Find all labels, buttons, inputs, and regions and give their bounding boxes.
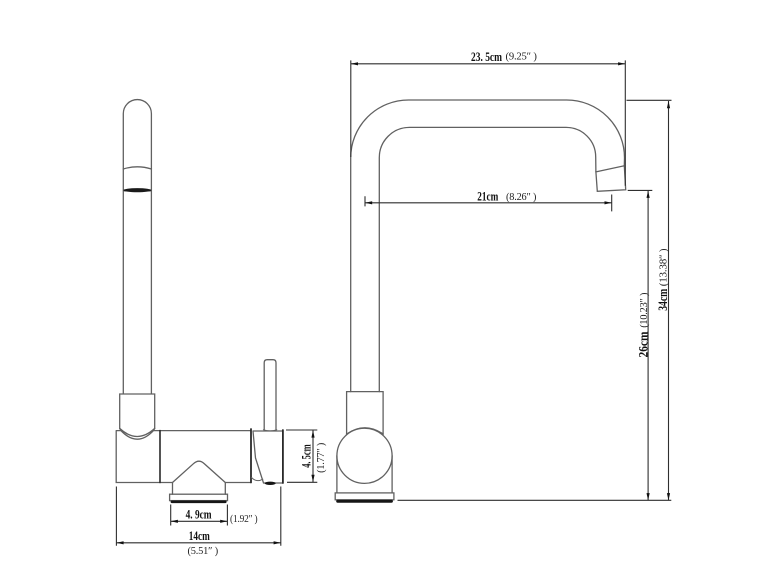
svg-text:(1.92″ ): (1.92″ ) [230,513,258,525]
svg-text:(5.51″ ): (5.51″ ) [188,545,219,557]
svg-text:14cm: 14cm [189,529,210,543]
svg-text:26cm: 26cm [636,331,650,358]
svg-text:23. 5cm: 23. 5cm [471,50,502,64]
svg-text:4. 9cm: 4. 9cm [186,508,212,522]
svg-text:4. 5cm: 4. 5cm [299,444,313,468]
svg-text:(9.25″ ): (9.25″ ) [506,50,538,62]
svg-text:(1.77″ ): (1.77″ ) [315,442,327,473]
svg-text:21cm: 21cm [477,189,498,203]
svg-text:(8.26″ ): (8.26″ ) [506,191,537,203]
svg-text:34cm: 34cm [656,288,670,310]
svg-text:(13.38″ ): (13.38″ ) [658,248,670,286]
svg-text:(10.23″ ): (10.23″ ) [638,292,650,328]
